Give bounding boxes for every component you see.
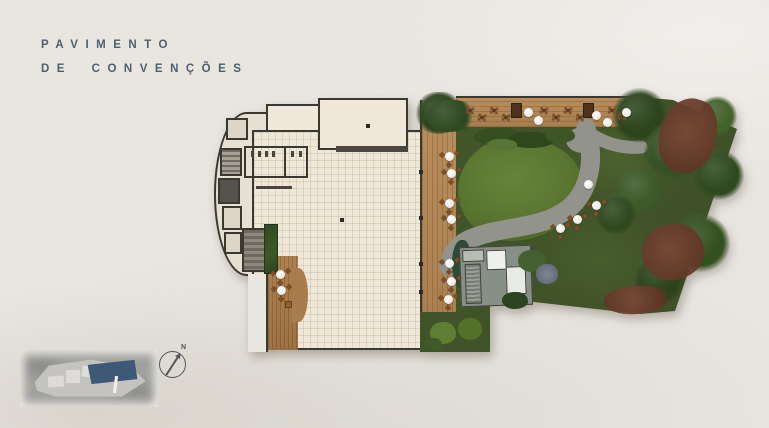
deck-table: [285, 301, 292, 308]
bush: [424, 338, 442, 351]
umbrella-table: [622, 108, 631, 117]
umbrella-table: [592, 201, 601, 210]
title-line-2: DE CONVENÇÕES: [41, 57, 248, 81]
roof-panel: [462, 249, 484, 262]
umbrella-table: [447, 277, 456, 286]
deck-planter: [511, 103, 522, 118]
umbrella-table: [276, 270, 285, 279]
hedge: [487, 139, 517, 150]
planter-bushes: [420, 100, 478, 132]
umbrella-table: [584, 180, 593, 189]
door-mark: [419, 262, 423, 266]
toilet-icon: [299, 151, 302, 157]
door-mark: [419, 290, 423, 294]
compass-north-label: N: [181, 344, 186, 351]
toilet-icon: [258, 151, 261, 157]
door-mark: [419, 216, 423, 220]
toilet-icon: [265, 151, 268, 157]
table-and-chairs: [564, 106, 573, 114]
skylight-panel: [486, 250, 507, 271]
table-and-chairs: [466, 106, 475, 114]
hedge: [545, 128, 575, 143]
door-mark: [419, 170, 423, 174]
exterior-stairs: [465, 264, 482, 305]
washbasin-counter: [256, 186, 292, 189]
table-and-chairs: [490, 106, 499, 114]
building-roof: [48, 375, 65, 387]
site-location-minimap: [20, 350, 158, 407]
elevator-shaft: [226, 118, 248, 140]
elevator-shaft: [222, 206, 242, 230]
umbrella-table: [447, 215, 456, 224]
umbrella-table: [534, 116, 543, 125]
building-roof: [66, 370, 80, 383]
restrooms: [244, 146, 308, 178]
umbrella-table: [277, 286, 286, 295]
stairs: [220, 148, 242, 176]
umbrella-table: [445, 259, 454, 268]
elevator-shaft: [224, 232, 242, 254]
door-mark: [340, 218, 344, 222]
bush: [458, 318, 482, 340]
umbrella-table: [445, 152, 454, 161]
table-and-chairs: [540, 106, 549, 114]
umbrella-table: [603, 118, 612, 127]
stage-counter: [336, 146, 408, 152]
umbrella-table: [445, 199, 454, 208]
planter: [264, 224, 278, 274]
title-line-1: PAVIMENTO: [41, 33, 248, 57]
table-and-chairs: [552, 113, 561, 121]
toilet-icon: [272, 151, 275, 157]
toilet-icon: [291, 151, 294, 157]
door-mark: [366, 124, 370, 128]
restroom-wall: [284, 148, 286, 176]
shrub: [502, 292, 528, 309]
umbrella-table: [524, 108, 533, 117]
service-room: [218, 178, 240, 204]
umbrella-table: [573, 215, 582, 224]
compass: N: [159, 349, 189, 379]
table-and-chairs: [608, 106, 617, 114]
umbrella-table: [444, 295, 453, 304]
umbrella-table: [592, 111, 601, 120]
brochure-page: PAVIMENTO DE CONVENÇÕES: [0, 0, 769, 428]
table-and-chairs: [502, 113, 511, 121]
umbrella-table: [556, 224, 565, 233]
page-title: PAVIMENTO DE CONVENÇÕES: [41, 33, 248, 81]
shrub-silver: [536, 264, 558, 284]
toilet-icon: [251, 151, 254, 157]
building-edge-notch: [248, 274, 268, 352]
table-and-chairs: [478, 113, 487, 121]
umbrella-table: [447, 169, 456, 178]
